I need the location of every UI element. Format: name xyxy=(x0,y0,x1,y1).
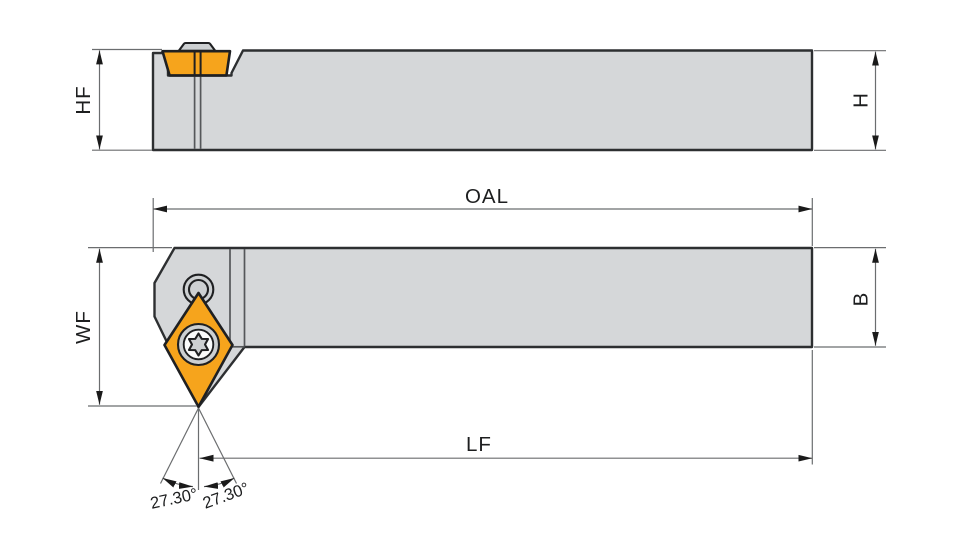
dimension-b: B xyxy=(814,248,886,347)
tip-angle-arc-left xyxy=(163,478,194,487)
tip-angle-line-left xyxy=(161,408,199,484)
side-view-screw-head xyxy=(179,43,215,51)
oal-label: OAL xyxy=(465,185,509,208)
dimension-h: H xyxy=(814,51,886,151)
dimension-hf: HF xyxy=(72,50,162,151)
hf-label: HF xyxy=(72,85,95,114)
tip-angle-callout: 27.30° 27.30° xyxy=(149,408,252,513)
tip-angle-label-left: 27.30° xyxy=(149,485,200,513)
b-label: B xyxy=(850,292,873,307)
dimension-oal: OAL xyxy=(153,185,812,252)
tool-holder-drawing: HF H OAL xyxy=(0,0,960,554)
top-view-body xyxy=(155,248,813,407)
drawing-canvas: HF H OAL xyxy=(0,0,960,554)
top-view xyxy=(155,248,813,407)
side-view-insert xyxy=(163,51,231,75)
tip-angle-line-right xyxy=(199,408,237,484)
side-view-shank-body xyxy=(153,51,812,151)
wf-label: WF xyxy=(72,310,95,344)
side-view xyxy=(153,43,812,150)
tip-angle-label-right: 27.30° xyxy=(200,479,251,512)
h-label: H xyxy=(850,92,873,108)
dimension-lf: LF xyxy=(200,350,813,465)
lf-label: LF xyxy=(466,433,492,456)
